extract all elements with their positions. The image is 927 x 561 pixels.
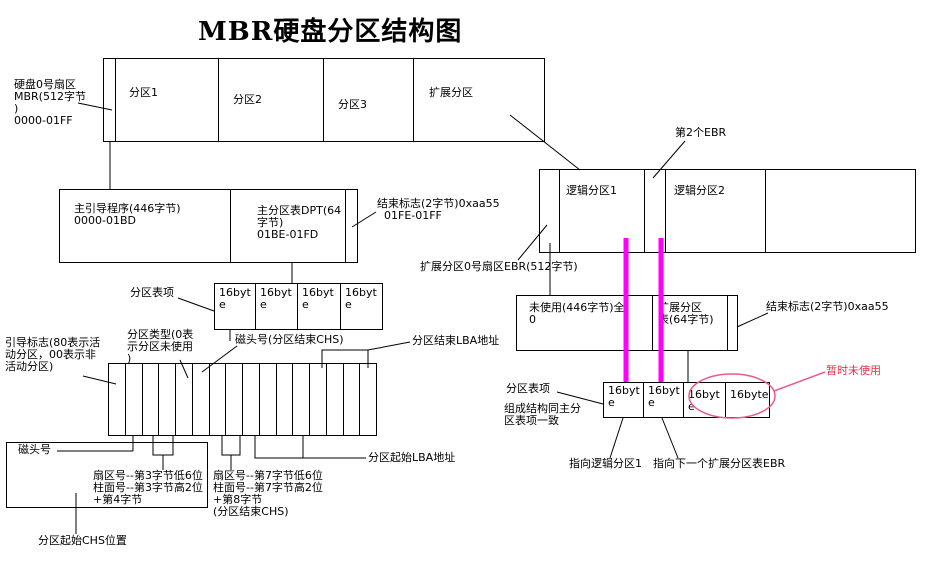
point-logical1-label: 指向逻辑分区1: [569, 458, 642, 470]
boot-flag-label: 引导标志(80表示活 动分区，00表示非 活动分区): [5, 337, 100, 373]
entry-cell-4-label: 16byte: [341, 284, 379, 311]
byte-cell: [260, 364, 277, 435]
ebr-entry-cell-4-label: 16byte: [726, 383, 772, 401]
start-chs-label: 分区起始CHS位置: [38, 535, 127, 547]
byte-cell: [293, 364, 310, 435]
partition-type-label: 分区类型(0表 示分区未使用 ): [127, 329, 193, 365]
byte-cell: [143, 364, 160, 435]
ebr-entry-cell-1-label: 16byte: [604, 383, 642, 409]
ebr-end-flag-cell: [728, 296, 739, 350]
extended-partition-cell: 扩展分区: [414, 59, 546, 141]
partition1-label: 分区1: [129, 87, 158, 99]
partition3-label: 分区3: [338, 99, 367, 111]
byte-cell: [243, 364, 260, 435]
entry-cell-1: 16byte: [215, 284, 256, 329]
byte-cell: [277, 364, 294, 435]
point-next-ebr-label: 指向下一个扩展分区表EBR: [653, 458, 785, 470]
byte-cell: [193, 364, 210, 435]
byte-cell: [210, 364, 227, 435]
leader-ebr-endcell-to-endflag: [737, 313, 768, 327]
logical1-cell: 逻辑分区1: [560, 170, 645, 252]
bracket-bytes-7-8: [222, 436, 240, 455]
byte-cell: [310, 364, 327, 435]
mbr-end-flag-cell: [346, 190, 359, 262]
mbr-end-flag-label: 结束标志(2字节)0xaa55 01FE-01FF: [377, 198, 500, 222]
ebr-end-flag-label: 结束标志(2字节)0xaa55: [766, 301, 889, 313]
ebr-entry-cell-2: 16byte: [644, 383, 684, 417]
partition1-cell: 分区1: [116, 59, 219, 141]
ebr2-cell: [645, 170, 666, 252]
byte-cell: [344, 364, 361, 435]
entry-cell-3-label: 16byte: [298, 284, 336, 311]
ebr-entry-cell-2-label: 16byte: [644, 383, 682, 409]
logical-bar: 逻辑分区1 逻辑分区2: [539, 169, 916, 253]
byte-cell: [327, 364, 344, 435]
sector3-label: 扇区号--第3字节低6位 柱面号--第3字节高2位 +第4字节: [93, 470, 203, 506]
logical2-label: 逻辑分区2: [674, 185, 725, 197]
entry-row-left: 16byte 16byte 16byte 16byte: [214, 283, 383, 330]
partition3-cell: 分区3: [324, 59, 414, 141]
ebr-unused-label: 未使用(446字节)全 0: [529, 302, 625, 326]
byte-cell: [176, 364, 193, 435]
second-ebr-label: 第2个EBR: [675, 127, 726, 139]
byte-cell: [226, 364, 243, 435]
logical1-label: 逻辑分区1: [566, 185, 617, 197]
partition2-label: 分区2: [233, 94, 262, 106]
leader-point-next-ebr: [662, 418, 678, 458]
entry-row-right-label: 分区表项: [506, 383, 550, 395]
dpt-cell: 主分区表DPT(64 字节) 01BE-01FD: [231, 190, 346, 262]
ebr-entry-cell-1: 16byte: [604, 383, 644, 417]
disk-bar: 分区1 分区2 分区3 扩展分区: [103, 58, 545, 142]
disk-sector0-label: 硬盘0号扇区 MBR(512字节 ) 0000-01FF: [14, 79, 86, 127]
mbr-structure-diagram: MBR硬盘分区结构图 硬盘0号扇区 MBR(512字节 ) 0000-01FF …: [0, 0, 927, 561]
leader-bracket-to-endlba-label: [368, 342, 410, 350]
mbr-sector-cell: [104, 59, 116, 141]
ebr1-cell: [540, 170, 560, 252]
leader-entry-label-left: [178, 298, 214, 311]
leader-point-logical1: [610, 418, 623, 458]
end-lba-label: 分区结束LBA地址: [412, 335, 499, 347]
logical-rest-cell: [766, 170, 917, 252]
byte-cell: [109, 364, 126, 435]
temp-unused-label: 暂时未使用: [826, 365, 881, 377]
boot-program-label: 主引导程序(446字节) 0000-01BD: [74, 203, 181, 227]
byte-cell: [360, 364, 376, 435]
ebr-table-label: 扩展分区 表(64字节): [658, 302, 714, 326]
head-end-chs-label: 磁头号(分区结束CHS): [235, 334, 344, 346]
ebr-entry-cell-3: 16byte: [684, 383, 726, 417]
ebr-sector-label: 扩展分区0号扇区EBR(512字节): [420, 261, 578, 273]
extended-partition-label: 扩展分区: [429, 87, 473, 99]
ebr-entry-cell-3-label: 16byte: [684, 383, 722, 413]
boot-program-cell: 主引导程序(446字节) 0000-01BD: [60, 190, 231, 262]
entry-row-left-label: 分区表项: [130, 287, 174, 299]
entry-row-right: 16byte 16byte 16byte 16byte: [603, 382, 770, 418]
partition2-cell: 分区2: [219, 59, 324, 141]
ebr-unused-cell: 未使用(446字节)全 0: [517, 296, 653, 350]
head-no-label: 磁头号: [18, 444, 51, 456]
entry-cell-2: 16byte: [256, 284, 298, 329]
bracket-bytes-9-12: [255, 436, 303, 458]
same-structure-label: 组成结构同主分 区表项一致: [504, 403, 581, 427]
ebr-table-cell: 扩展分区 表(64字节): [653, 296, 728, 350]
diagram-title: MBR硬盘分区结构图: [198, 11, 462, 48]
entry-cell-2-label: 16byte: [256, 284, 294, 311]
mbr-detail-box: 主引导程序(446字节) 0000-01BD 主分区表DPT(64 字节) 01…: [59, 189, 358, 263]
start-lba-label: 分区起始LBA地址: [368, 452, 455, 464]
sector7-label: 扇区号--第7字节低6位 柱面号--第7字节高2位 +第8字节 (分区结束CHS…: [213, 470, 323, 518]
dpt-label: 主分区表DPT(64 字节) 01BE-01FD: [257, 205, 341, 241]
byte-bar: [108, 363, 377, 436]
ebr-detail-box: 未使用(446字节)全 0 扩展分区 表(64字节): [516, 295, 738, 351]
byte-cell: [126, 364, 143, 435]
logical2-cell: 逻辑分区2: [666, 170, 766, 252]
entry-cell-4: 16byte: [341, 284, 384, 329]
entry-cell-1-label: 16byte: [215, 284, 253, 311]
byte-cell: [159, 364, 176, 435]
leader-temp-unused: [774, 372, 825, 391]
ebr-entry-cell-4: 16byte: [726, 383, 771, 417]
entry-cell-3: 16byte: [298, 284, 341, 329]
